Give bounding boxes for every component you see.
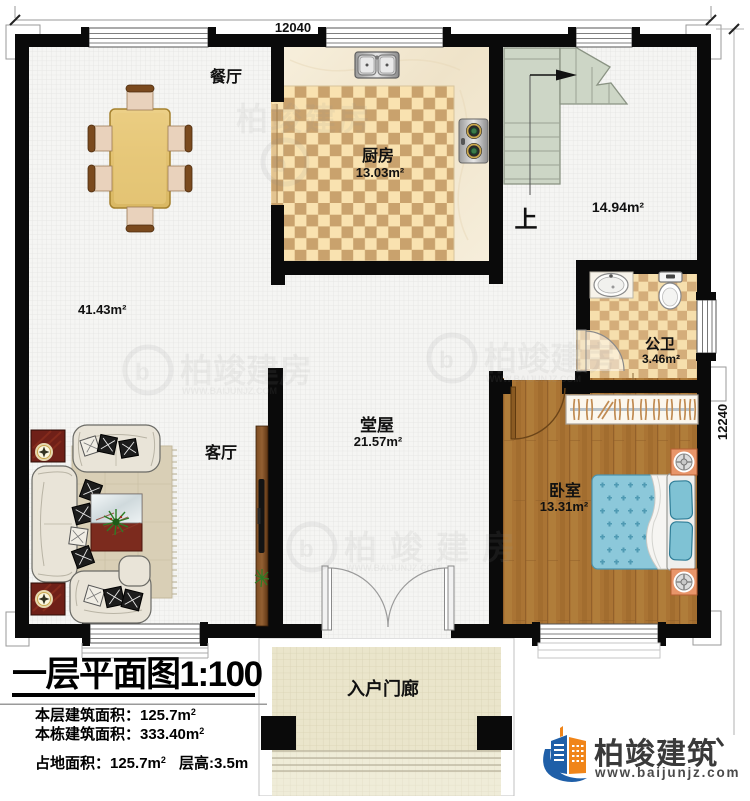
svg-text:本栋建筑面积：333.40m2: 本栋建筑面积：333.40m2: [35, 725, 204, 743]
svg-text:3.46m²: 3.46m²: [642, 352, 680, 366]
svg-text:41.43m²: 41.43m²: [78, 302, 127, 317]
svg-text:13.31m²: 13.31m²: [540, 499, 589, 514]
svg-text:www.baijunjz.com: www.baijunjz.com: [594, 765, 740, 780]
svg-text:公卫: 公卫: [645, 336, 675, 353]
svg-text:一层平面图1:100: 一层平面图1:100: [12, 655, 263, 694]
svg-text:餐厅: 餐厅: [209, 67, 242, 86]
svg-text:本层建筑面积：125.7m2: 本层建筑面积：125.7m2: [35, 706, 196, 724]
svg-text:21.57m²: 21.57m²: [354, 434, 403, 449]
svg-text:柏竣建房: 柏竣建房: [236, 101, 372, 137]
svg-text:WWW.BAIJUNJZ.COM: WWW.BAIJUNJZ.COM: [346, 563, 441, 573]
svg-text:堂屋: 堂屋: [360, 415, 394, 435]
svg-text:b: b: [299, 536, 314, 563]
svg-text:卧室: 卧室: [549, 481, 581, 500]
svg-text:13.03m²: 13.03m²: [356, 165, 405, 180]
svg-text:上: 上: [515, 206, 538, 232]
svg-text:14.94m²: 14.94m²: [592, 199, 644, 215]
svg-text:占地面积：125.7m2层高:3.5m: 占地面积：125.7m2层高:3.5m: [35, 754, 248, 772]
svg-text:b: b: [439, 347, 454, 374]
svg-text:b: b: [135, 359, 150, 386]
svg-text:厨房: 厨房: [362, 146, 394, 165]
svg-text:WWW.BAIJUNJZ.COM: WWW.BAIJUNJZ.COM: [182, 386, 277, 396]
svg-text:客厅: 客厅: [205, 443, 237, 462]
svg-text:柏竣建房: 柏竣建房: [344, 529, 528, 566]
svg-text:WWW.BAIJUNJZ.COM: WWW.BAIJUNJZ.COM: [486, 374, 581, 384]
svg-text:12040: 12040: [275, 20, 311, 35]
svg-text:柏竣建房: 柏竣建房: [180, 352, 312, 389]
svg-text:b: b: [272, 151, 287, 178]
svg-text:12240: 12240: [715, 404, 730, 440]
svg-text:柏竣建房: 柏竣建房: [484, 340, 616, 377]
svg-text:入户门廊: 入户门廊: [347, 678, 419, 699]
